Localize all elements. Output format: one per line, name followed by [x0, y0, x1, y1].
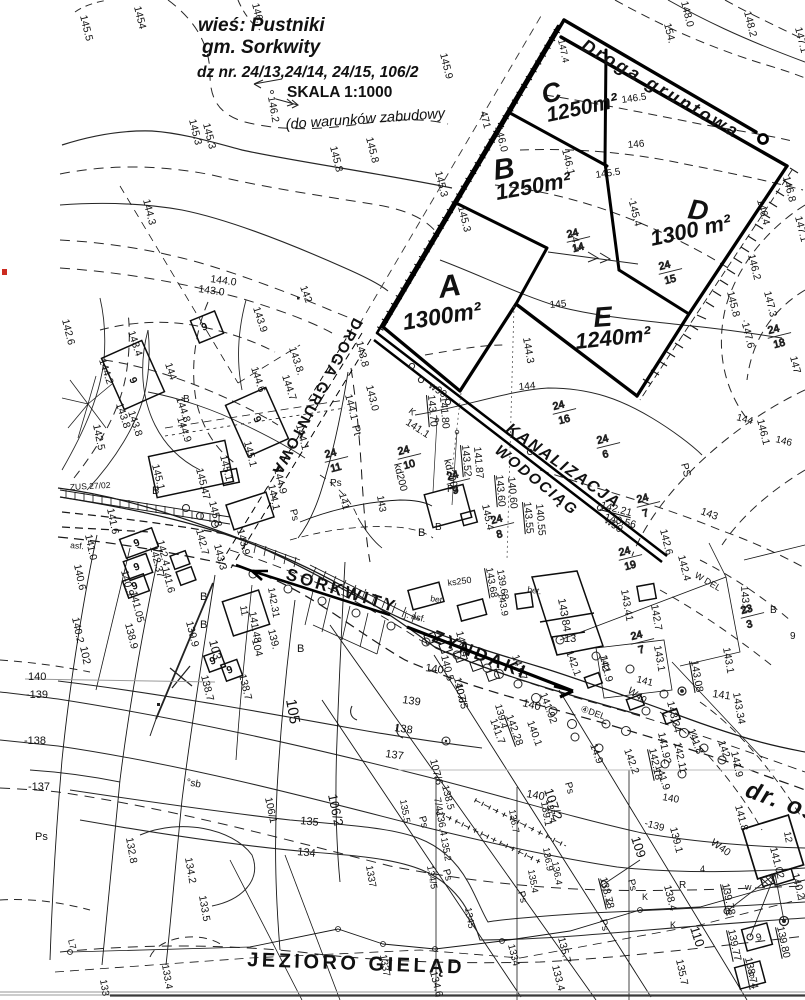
- svg-text:K: K: [605, 897, 611, 907]
- svg-text:B: B: [770, 605, 777, 616]
- svg-text:140: 140: [28, 671, 46, 683]
- svg-text:13: 13: [564, 633, 576, 645]
- svg-text:9: 9: [790, 631, 796, 642]
- svg-text:-137: -137: [28, 781, 50, 793]
- svg-text:134: 134: [297, 846, 317, 860]
- svg-text:-139: -139: [26, 689, 48, 701]
- svg-text:135: 135: [300, 815, 320, 829]
- svg-text:145: 145: [549, 299, 567, 311]
- svg-text:bet: bet: [430, 593, 444, 605]
- svg-text:4: 4: [700, 864, 705, 874]
- svg-text:B: B: [200, 619, 207, 631]
- svg-text:144: 144: [518, 381, 536, 393]
- svg-text:B: B: [418, 527, 425, 539]
- svg-text:K: K: [642, 892, 648, 902]
- svg-text:137: 137: [385, 748, 405, 762]
- svg-text:asf.: asf.: [70, 540, 85, 551]
- svg-text:gm. Sorkwity: gm. Sorkwity: [201, 37, 322, 58]
- svg-text:Ps: Ps: [330, 478, 342, 489]
- svg-text:B: B: [152, 485, 159, 497]
- svg-text:B: B: [297, 643, 304, 655]
- svg-text:146: 146: [627, 139, 645, 151]
- svg-text:R: R: [679, 880, 686, 891]
- svg-text:dz nr. 24/13,24/14, 24/15, 106: dz nr. 24/13,24/14, 24/15, 106/2: [197, 64, 419, 81]
- svg-text:ZUS 27/02: ZUS 27/02: [70, 480, 111, 492]
- svg-text:B: B: [200, 591, 207, 603]
- svg-text:Ps: Ps: [35, 831, 48, 843]
- svg-text:143.0: 143.0: [738, 585, 752, 612]
- svg-text:138: 138: [394, 722, 414, 736]
- svg-text:B: B: [435, 522, 442, 533]
- svg-text:141: 141: [712, 688, 732, 702]
- svg-text:139: 139: [402, 694, 422, 708]
- svg-text:SKALA 1:1000: SKALA 1:1000: [287, 84, 392, 101]
- svg-text:w: w: [744, 882, 752, 892]
- svg-text:B: B: [183, 394, 190, 405]
- svg-text:Ps: Ps: [447, 484, 459, 495]
- svg-text:140: 140: [425, 662, 445, 676]
- svg-text:-138: -138: [24, 735, 46, 747]
- svg-text:K: K: [670, 920, 676, 930]
